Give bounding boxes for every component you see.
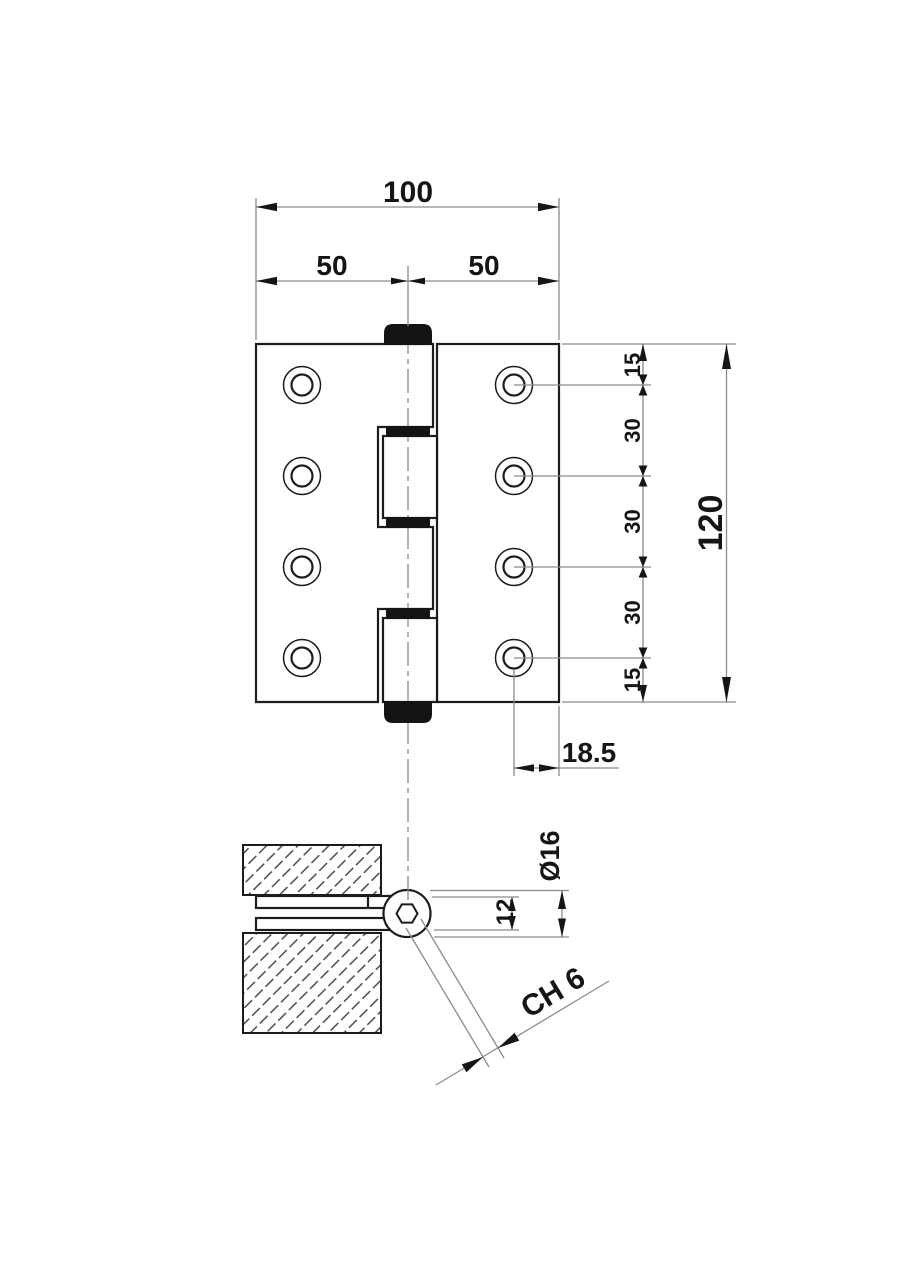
dim-overall-height-label: 120 — [692, 495, 730, 552]
hinge-technical-drawing: 100 50 50 15 30 30 — [0, 0, 900, 1273]
pin-washer — [386, 608, 430, 619]
dim-pitch-label-2: 30 — [620, 418, 645, 442]
drawing-sheet: 100 50 50 15 30 30 — [0, 0, 900, 1273]
section-view — [243, 845, 431, 1033]
dim-knuckle-diameter-label: Ø16 — [535, 830, 565, 881]
dim-overall-height: 120 — [692, 344, 731, 702]
dim-overall-width: 100 — [256, 176, 559, 211]
dim-closed-thickness-label: 12 — [492, 899, 519, 926]
pin-cap-top — [384, 324, 432, 345]
dim-hex-socket: CH 6 — [406, 919, 609, 1085]
screw-hole — [284, 549, 321, 586]
frame-block-hatched — [243, 845, 381, 895]
screw-hole — [284, 458, 321, 495]
dim-closed-thickness: 12 — [432, 897, 519, 930]
dim-pitch-label-4: 30 — [620, 600, 645, 624]
pin-washer — [386, 517, 430, 528]
right-leaf-knuckle-upper — [383, 436, 437, 518]
pin-cap-bottom — [384, 701, 432, 723]
right-leaf-knuckle-lower — [383, 618, 437, 702]
dim-pitch-label-5: 15 — [620, 668, 645, 692]
door-block-hatched — [243, 933, 381, 1033]
dim-pitch-label-3: 30 — [620, 509, 645, 533]
dim-left-leaf-label: 50 — [316, 250, 347, 281]
dim-pitch-label-1: 15 — [620, 353, 645, 377]
dim-overall-width-label: 100 — [383, 176, 433, 209]
pin-washer — [386, 426, 430, 437]
screw-hole — [284, 640, 321, 677]
dim-hole-to-edge-label: 18.5 — [562, 737, 617, 768]
screw-hole — [284, 367, 321, 404]
hex-socket — [397, 904, 418, 922]
dim-hole-pitch-chain: 15 30 30 30 15 — [620, 344, 647, 702]
dim-right-leaf-label: 50 — [468, 250, 499, 281]
